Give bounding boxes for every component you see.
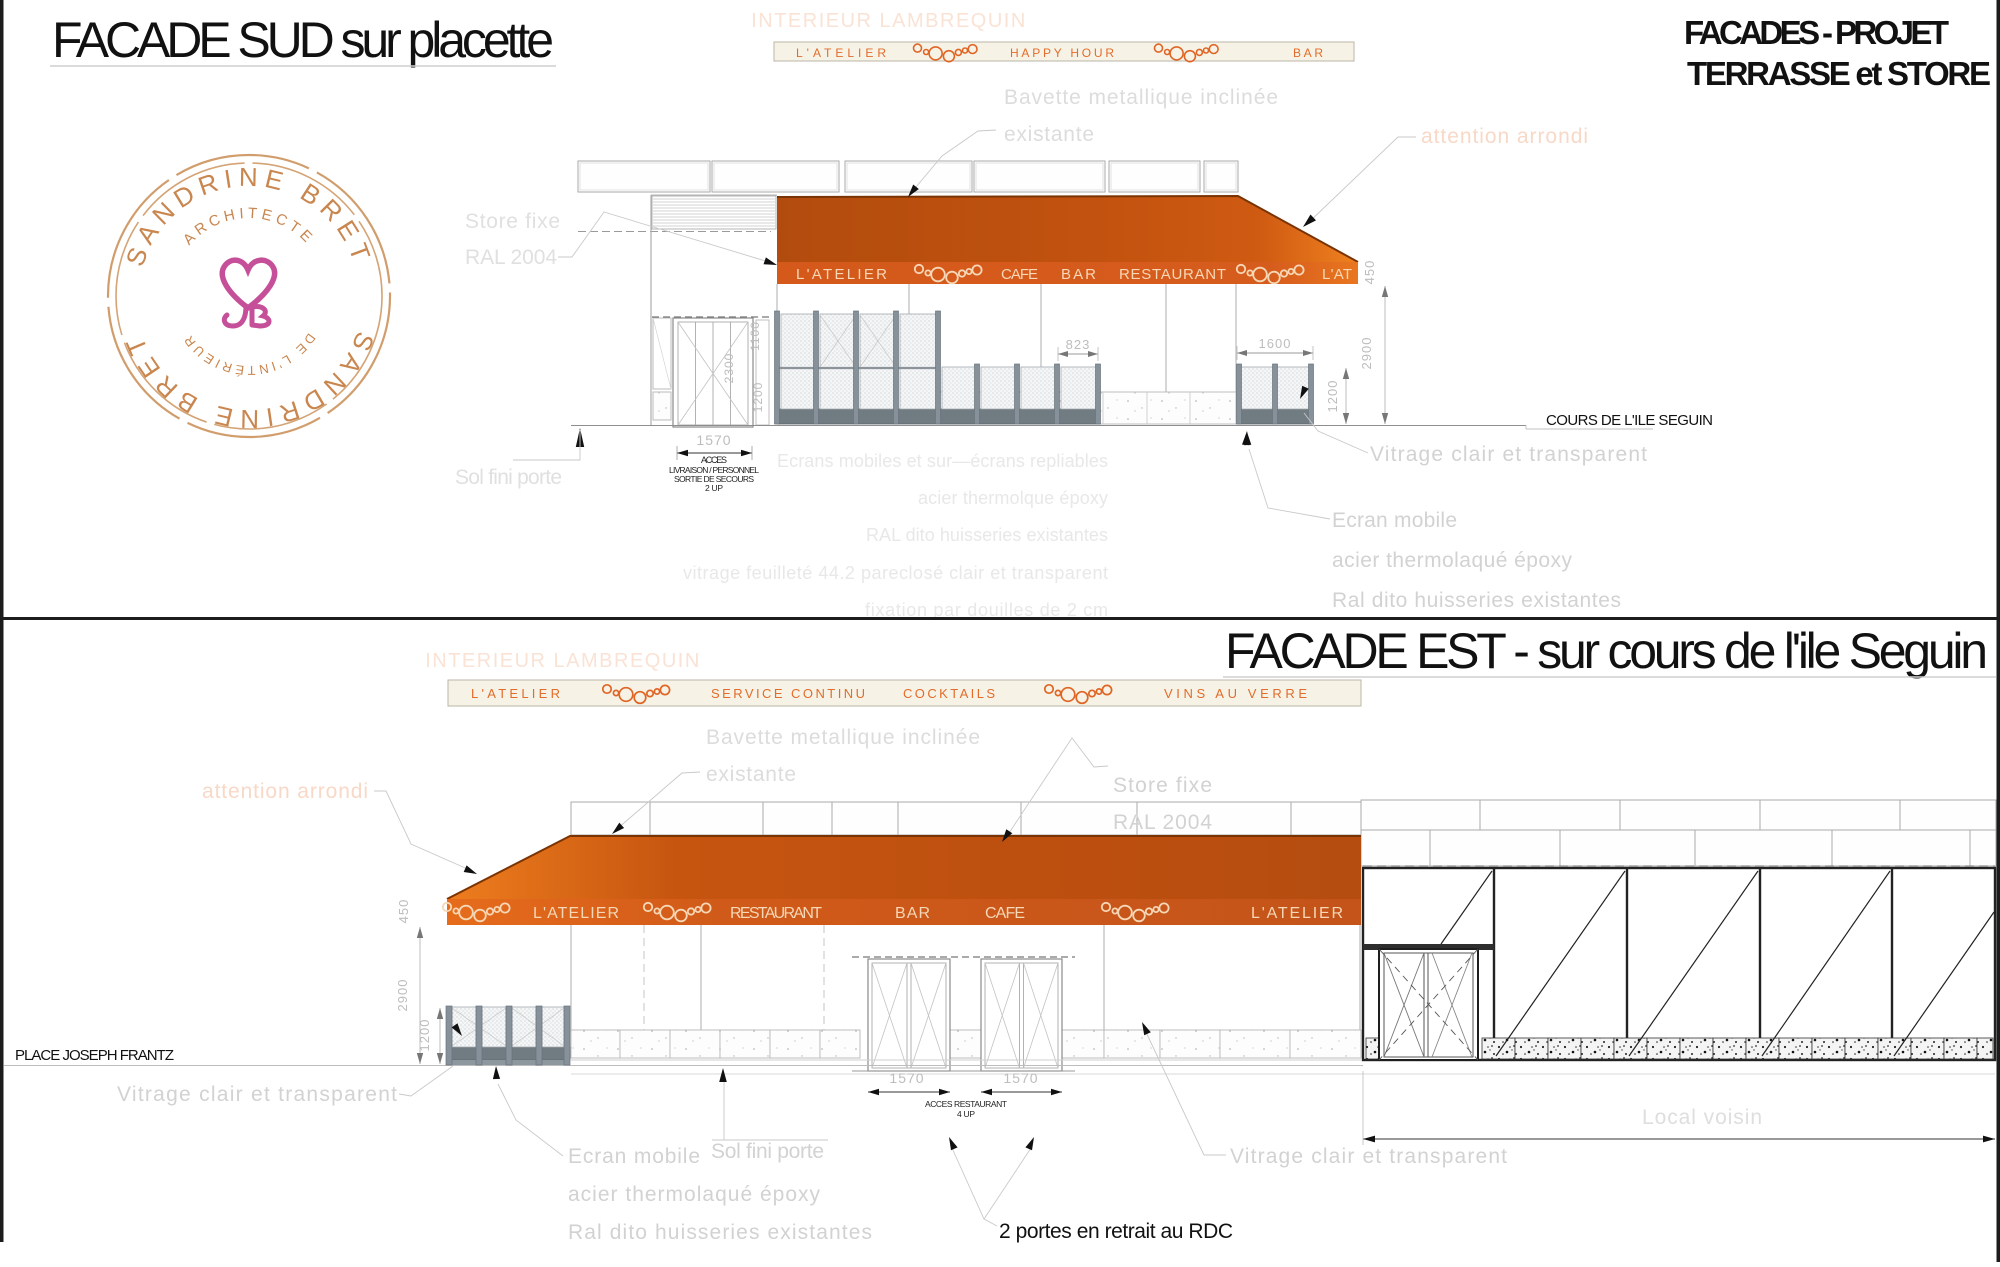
- svg-text:1600: 1600: [1259, 336, 1292, 351]
- svg-text:1200: 1200: [417, 1019, 432, 1052]
- svg-text:RAL 2004: RAL 2004: [1113, 811, 1212, 834]
- svg-text:Vitrage clair et transparen: Vitrage clair et transparent: [117, 1083, 397, 1106]
- svg-text:INTERIEUR LAMBREQUIN: INTERIEUR LAMBREQUIN: [425, 650, 701, 672]
- svg-text:4 UP: 4 UP: [957, 1109, 975, 1119]
- svg-text:FACADES - PROJET: FACADES - PROJET: [1684, 14, 1949, 51]
- svg-text:CAFE: CAFE: [985, 905, 1025, 922]
- svg-text:Vitrage clair et transparen: Vitrage clair et transparent: [1230, 1145, 1507, 1168]
- svg-text:L'AT: L'AT: [1322, 266, 1352, 283]
- svg-text:450: 450: [1362, 260, 1377, 285]
- svg-text:Store fixe: Store fixe: [1113, 774, 1212, 797]
- svg-text:450: 450: [396, 899, 411, 924]
- svg-text:1200: 1200: [1325, 380, 1340, 413]
- svg-text:acier thermolaqué époxy: acier thermolaqué époxy: [568, 1183, 821, 1206]
- svg-text:2900: 2900: [1359, 337, 1374, 370]
- svg-text:ACCES RESTAURANT: ACCES RESTAURANT: [925, 1099, 1007, 1109]
- svg-text:Local voisin: Local voisin: [1642, 1106, 1762, 1129]
- svg-text:1570: 1570: [1003, 1070, 1038, 1086]
- svg-text:BAR: BAR: [1293, 46, 1323, 60]
- svg-text:existante: existante: [1004, 123, 1094, 146]
- svg-text:2300: 2300: [722, 353, 736, 384]
- svg-text:existante: existante: [706, 763, 796, 786]
- svg-text:acier thermolaqué époxy: acier thermolaqué époxy: [1332, 549, 1573, 572]
- svg-text:acier thermolque époxy: acier thermolque époxy: [918, 488, 1108, 508]
- svg-text:1570: 1570: [696, 432, 731, 448]
- svg-text:TERRASSE et STORE: TERRASSE et STORE: [1687, 55, 1991, 92]
- svg-text:823: 823: [1066, 337, 1091, 352]
- svg-text:vitrage feuilleté 44.2 pare: vitrage feuilleté 44.2 pareclosé clair e…: [683, 563, 1108, 583]
- svg-text:Sol fini porte: Sol fini porte: [455, 466, 562, 489]
- svg-text:Ecrans mobiles et sur—écran: Ecrans mobiles et sur—écrans repliables: [777, 451, 1108, 471]
- svg-text:Ral dito huisseries existan: Ral dito huisseries existantes: [568, 1221, 872, 1244]
- svg-text:RAL dito huisseries existan: RAL dito huisseries existantes: [866, 525, 1108, 545]
- svg-text:VINS AU VERRE: VINS AU VERRE: [1164, 686, 1307, 701]
- svg-text:1100: 1100: [748, 321, 762, 351]
- svg-text:RESTAURANT: RESTAURANT: [1119, 266, 1226, 283]
- svg-text:Sol fini porte: Sol fini porte: [711, 1140, 824, 1163]
- svg-text:RESTAURANT: RESTAURANT: [730, 905, 822, 922]
- svg-text:2 portes en retrait au RDC: 2 portes en retrait au RDC: [999, 1220, 1233, 1243]
- svg-text:Store fixe: Store fixe: [465, 210, 560, 233]
- svg-text:Vitrage clair et transparen: Vitrage clair et transparent: [1370, 443, 1647, 466]
- svg-text:BAR: BAR: [895, 905, 930, 922]
- svg-text:CAFE: CAFE: [1001, 266, 1038, 283]
- svg-text:2900: 2900: [395, 979, 410, 1012]
- svg-text:attention arrondi: attention arrondi: [202, 780, 368, 803]
- svg-text:COURS DE L'ILE SEGUIN: COURS DE L'ILE SEGUIN: [1546, 412, 1713, 429]
- svg-text:Bavette metallique inclinée: Bavette metallique inclinée: [706, 726, 980, 749]
- svg-text:RAL 2004: RAL 2004: [465, 246, 557, 269]
- svg-text:Ecran mobile: Ecran mobile: [568, 1145, 700, 1168]
- svg-text:FACADE EST - sur cours de l'il: FACADE EST - sur cours de l'ile Seguin: [1225, 623, 1988, 679]
- svg-text:Ecran mobile: Ecran mobile: [1332, 509, 1457, 532]
- svg-text:BAR: BAR: [1061, 266, 1096, 283]
- svg-text:PLACE JOSEPH FRANTZ: PLACE JOSEPH FRANTZ: [15, 1047, 174, 1064]
- svg-text:1200: 1200: [751, 382, 765, 413]
- svg-text:Bavette metallique inclinée: Bavette metallique inclinée: [1004, 86, 1278, 109]
- svg-text:attention arrondi: attention arrondi: [1421, 125, 1588, 148]
- svg-text:1570: 1570: [889, 1070, 924, 1086]
- svg-text:INTERIEUR LAMBREQUIN: INTERIEUR LAMBREQUIN: [751, 10, 1027, 32]
- svg-text:2 UP: 2 UP: [705, 483, 723, 493]
- svg-text:L'ATELIER: L'ATELIER: [533, 905, 619, 922]
- svg-text:Ral dito huisseries existan: Ral dito huisseries existantes: [1332, 589, 1621, 612]
- svg-text:FACADE SUD sur placette: FACADE SUD sur placette: [52, 12, 554, 68]
- svg-text:ACCES: ACCES: [701, 455, 727, 465]
